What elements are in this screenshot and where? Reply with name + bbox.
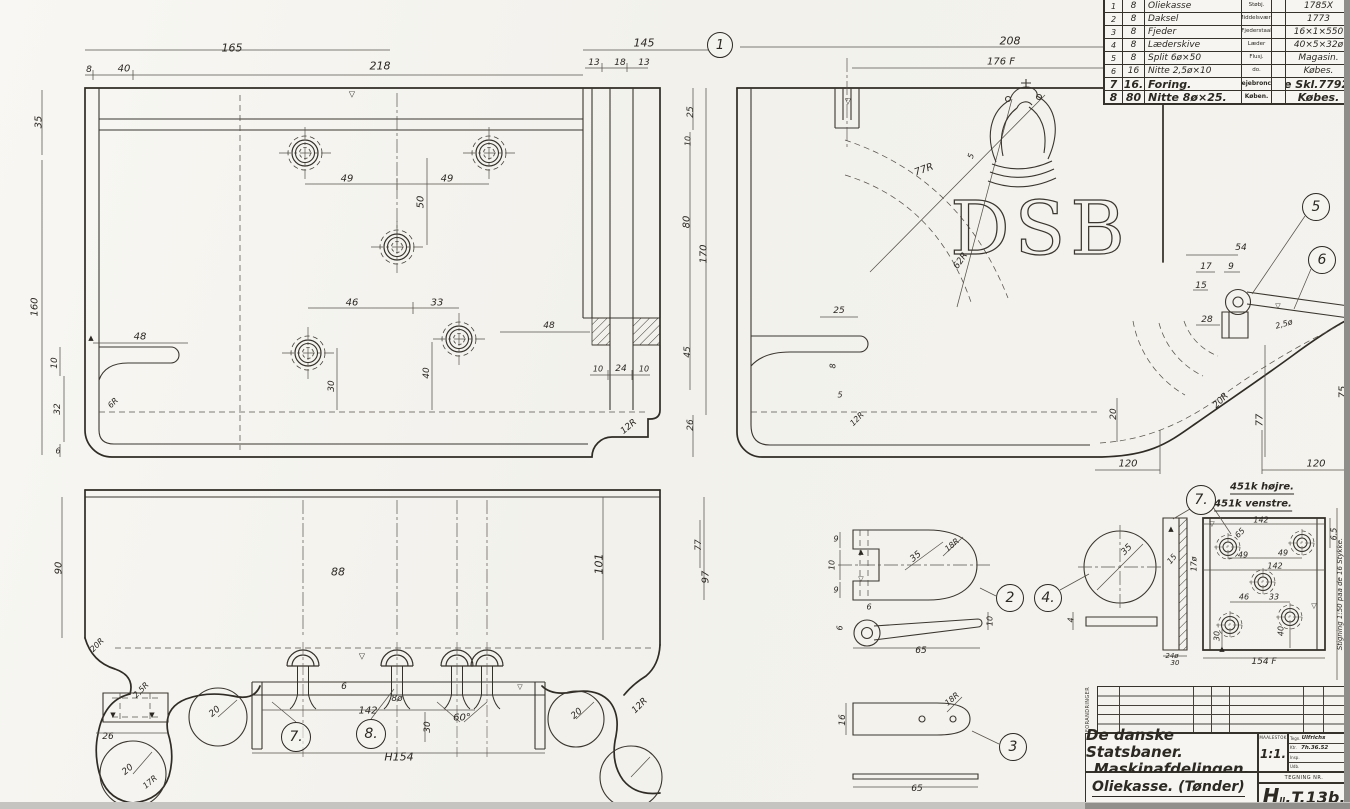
part-row-material: do. xyxy=(1242,65,1272,78)
part-row-material: Fjederstaal xyxy=(1242,26,1272,39)
view-front-elevation: DSB xyxy=(737,47,1349,474)
parts-table: 1 8 Oliekasse Støbj. 1785X 2 8 Daksel Mi… xyxy=(1103,0,1350,105)
part-row-name: Nitte 2,5ø×10 xyxy=(1145,65,1242,78)
part-row-no: 4 xyxy=(1105,39,1123,52)
part-row-no: 7 xyxy=(1105,78,1123,91)
part-row-no: 3 xyxy=(1105,26,1123,39)
part-row-no: 2 xyxy=(1105,13,1123,26)
crown-icon xyxy=(988,79,1056,187)
part-row-note: 16×1×550 xyxy=(1286,26,1350,39)
part-row-no: 5 xyxy=(1105,52,1123,65)
table-cell-blank xyxy=(1272,13,1286,26)
sign-label: Ktr. xyxy=(1289,745,1301,750)
title-block: FORANDRINGER De danske Statsbaner. Maski… xyxy=(1085,684,1350,809)
part-row-no: 6 xyxy=(1105,65,1123,78)
signature-box: Tegn.Ulfrichs Ktr.7h.36.52 Insp. Udb. xyxy=(1288,733,1350,772)
part-row-name: Foring. xyxy=(1145,78,1242,91)
part-row-qty: 16. xyxy=(1123,78,1145,91)
part-row-material: Støbj. xyxy=(1242,0,1272,13)
sign-label: Tegn. xyxy=(1289,736,1302,741)
drawing-number-prefix: H xyxy=(1263,786,1280,806)
part-row-qty: 16 xyxy=(1123,65,1145,78)
part-row-material: Flusj. xyxy=(1242,52,1272,65)
part-row-name: Oliekasse xyxy=(1145,0,1242,13)
part-row-note: 40×5×32ø xyxy=(1286,39,1350,52)
drawing-number-rest: .T.13b. xyxy=(1285,790,1345,806)
view-side-elevation xyxy=(42,50,708,457)
part-row-no: 8 xyxy=(1105,91,1123,104)
part-washer-detail xyxy=(1060,525,1162,630)
table-cell-blank xyxy=(1272,26,1286,39)
part-cover-detail xyxy=(838,530,996,648)
table-cell-blank xyxy=(1272,78,1286,91)
part-row-note: 1773 xyxy=(1286,13,1350,26)
company-name: De danske Statsbaner. Maskinafdelingen. xyxy=(1085,733,1258,772)
table-cell-blank xyxy=(1272,0,1286,13)
part-row-qty: 8 xyxy=(1123,39,1145,52)
part-row-name: Fjeder xyxy=(1145,26,1242,39)
part-spring-detail xyxy=(846,697,999,787)
drawing-title-box: Oliekasse. (Tønder) 12.86.b.F. xyxy=(1085,772,1258,809)
view-bottom xyxy=(62,490,704,808)
part-row-note: 1785X xyxy=(1286,0,1350,13)
table-cell-blank xyxy=(1272,91,1286,104)
part-liner-detail xyxy=(1163,507,1337,680)
scale-box: MAALESTOK 1:1. xyxy=(1258,733,1288,772)
part-row-note: Magasin. xyxy=(1286,52,1350,65)
part-row-qty: 8 xyxy=(1123,26,1145,39)
table-cell-blank xyxy=(1272,39,1286,52)
part-row-name: Nitte 8ø×25. xyxy=(1145,91,1242,104)
part-row-qty: 8 xyxy=(1123,52,1145,65)
part-row-name: Læderskive xyxy=(1145,39,1242,52)
drawing-title: Oliekasse. (Tønder) xyxy=(1092,779,1245,797)
part-row-material: Køben. xyxy=(1242,91,1272,104)
scanned-technical-drawing: .o{stroke:#2f2b25;stroke-width:1.7;fill:… xyxy=(0,0,1350,809)
sign-label: Insp. xyxy=(1289,755,1301,760)
table-cell-blank xyxy=(1272,52,1286,65)
sign-label: Udb. xyxy=(1289,764,1301,769)
sign-value: Ulfrichs xyxy=(1302,735,1326,741)
part-row-note: Købes. xyxy=(1286,65,1350,78)
part-row-material: Læder xyxy=(1242,39,1272,52)
part-row-qty: 8 xyxy=(1123,0,1145,13)
part-row-note: Købes. xyxy=(1286,91,1350,104)
drawing-number: HII.T.13b. xyxy=(1258,783,1350,809)
scale-label: MAALESTOK xyxy=(1259,735,1287,740)
drawing-number-label: TEGNING NR. xyxy=(1258,772,1350,783)
part-row-material: Lejebronce xyxy=(1242,78,1272,91)
part-row-name: Daksel xyxy=(1145,13,1242,26)
part-row-name: Split 6ø×50 xyxy=(1145,52,1242,65)
drawing-subtitle: 12.86.b.F. xyxy=(1092,801,1151,809)
sign-value: 7h.36.52 xyxy=(1301,745,1328,751)
part-row-note: Se Skl.77926. xyxy=(1286,78,1350,91)
scale-value: 1:1. xyxy=(1259,747,1287,761)
part-row-material: Middelsvære xyxy=(1242,13,1272,26)
part-row-qty: 8 xyxy=(1123,13,1145,26)
part-row-qty: 80 xyxy=(1123,91,1145,104)
company-line1: De danske Statsbaner. xyxy=(1086,727,1257,762)
dsb-emblem-text: DSB xyxy=(950,186,1129,272)
table-cell-blank xyxy=(1272,65,1286,78)
part-row-no: 1 xyxy=(1105,0,1123,13)
